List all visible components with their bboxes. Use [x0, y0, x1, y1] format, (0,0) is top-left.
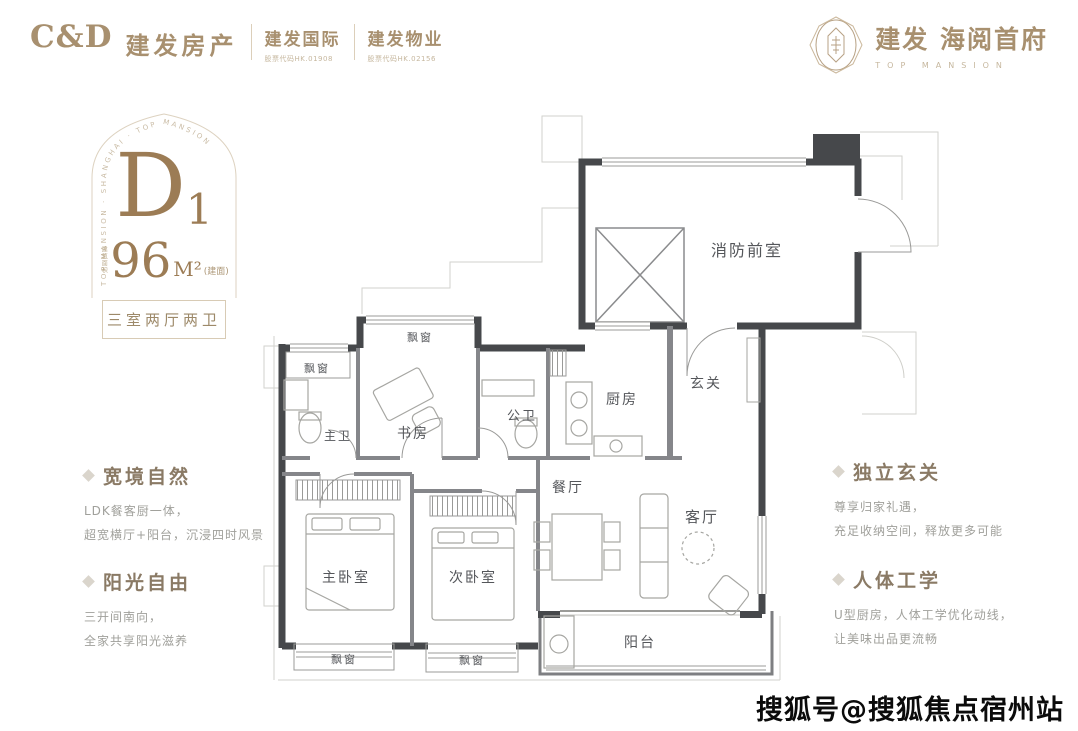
project-name-block: 建发 海阅首府 TOP MANSION — [875, 20, 1048, 70]
room-label-bay-top: 飘窗 — [407, 330, 433, 344]
project-name-en: TOP MANSION — [875, 61, 1009, 70]
room-label-bay-bottom-left: 飘窗 — [331, 652, 357, 666]
room-labels: 消防前室 飘窗 飘窗 书房 主卫 公卫 厨房 玄关 餐厅 客厅 主卧室 次卧室 … — [304, 241, 783, 667]
partner-1: 建发国际 股票代码HK.01908 — [265, 25, 341, 64]
door-arc — [862, 336, 904, 378]
room-label-guest-bath: 公卫 — [507, 409, 537, 424]
room-label-foyer: 玄关 — [690, 375, 722, 392]
toilet-icon — [284, 380, 321, 443]
unit-area: 建筑面积 96 M² (建面) — [70, 241, 258, 282]
room-label-master-bath: 主卫 — [324, 429, 352, 443]
unit-code-number: 1 — [186, 185, 213, 234]
unit-code-letter: D — [115, 134, 186, 237]
diamond-icon — [82, 469, 95, 482]
brand-name: 建发房产 — [126, 26, 238, 61]
door-arc — [858, 199, 911, 252]
area-unit: M² — [173, 257, 202, 281]
layout-label-box: 三室两厅两卫 — [102, 300, 226, 339]
project-emblem-icon — [807, 14, 865, 76]
room-label-bay-bottom-right: 飘窗 — [459, 653, 485, 667]
dining-table-icon — [534, 514, 620, 580]
cd-logo: C&D — [30, 22, 113, 53]
wardrobe-icon — [296, 480, 516, 516]
poster: C&D 建发房产 建发国际 股票代码HK.01908 建发物业 股票代码HK.0… — [0, 0, 1078, 731]
area-label: 建筑面积 — [99, 246, 108, 274]
divider — [354, 24, 355, 60]
feature-title: 阳光自由 — [103, 568, 191, 595]
room-label-fire-lobby: 消防前室 — [711, 241, 783, 260]
stove-icon — [566, 382, 592, 444]
room-label-balcony: 阳台 — [624, 635, 656, 651]
room-label-living: 客厅 — [685, 508, 719, 526]
room-label-bay-left: 飘窗 — [304, 361, 330, 375]
partner-2-code: 股票代码HK.02156 — [368, 54, 444, 64]
room-label-dining: 餐厅 — [552, 480, 584, 496]
project-logo: 建发 海阅首府 TOP MANSION — [807, 14, 1048, 76]
room-label-second-bed: 次卧室 — [449, 569, 497, 586]
room-label-study: 书房 — [397, 426, 429, 442]
elevator-icon — [596, 228, 684, 322]
partner-1-name: 建发国际 — [265, 25, 341, 50]
partner-2: 建发物业 股票代码HK.02156 — [368, 25, 444, 64]
area-note: (建面) — [204, 264, 229, 277]
room-label-master-bed: 主卧室 — [322, 569, 370, 586]
floorplan: 消防前室 飘窗 飘窗 书房 主卫 公卫 厨房 玄关 餐厅 客厅 主卧室 次卧室 … — [250, 96, 940, 696]
room-label-kitchen: 厨房 — [606, 392, 638, 408]
bed-icon — [306, 514, 394, 610]
kitchen-sink-icon — [594, 436, 642, 456]
washer-icon — [544, 616, 574, 668]
divider — [251, 24, 252, 60]
project-name: 建发 海阅首府 — [875, 20, 1048, 56]
wall-block — [813, 134, 860, 164]
context-outline — [264, 116, 938, 680]
unit-card: TOP MANSION · SHANGHAI · TOP MANSION D1 … — [70, 98, 258, 339]
partner-1-code: 股票代码HK.01908 — [265, 54, 341, 64]
area-value: 96 — [110, 241, 171, 282]
watermark: 搜狐号@搜狐焦点宿州站 — [756, 688, 1064, 727]
header-brand: C&D 建发房产 建发国际 股票代码HK.01908 建发物业 股票代码HK.0… — [30, 22, 444, 64]
diamond-icon — [82, 575, 95, 588]
unit-code: D1 — [70, 98, 258, 231]
feature-title: 宽境自然 — [103, 462, 191, 489]
partner-2-name: 建发物业 — [368, 25, 444, 50]
